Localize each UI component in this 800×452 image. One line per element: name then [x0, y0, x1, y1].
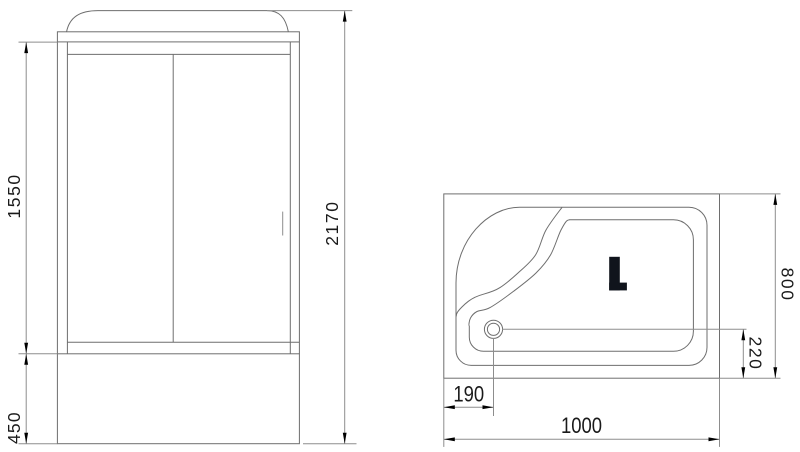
svg-text:450: 450	[4, 411, 24, 444]
svg-text:1550: 1550	[4, 173, 24, 218]
svg-text:190: 190	[453, 383, 484, 407]
svg-text:1000: 1000	[561, 415, 602, 439]
svg-text:2170: 2170	[322, 200, 342, 245]
svg-text:220: 220	[746, 337, 766, 371]
svg-text:800: 800	[778, 268, 798, 302]
